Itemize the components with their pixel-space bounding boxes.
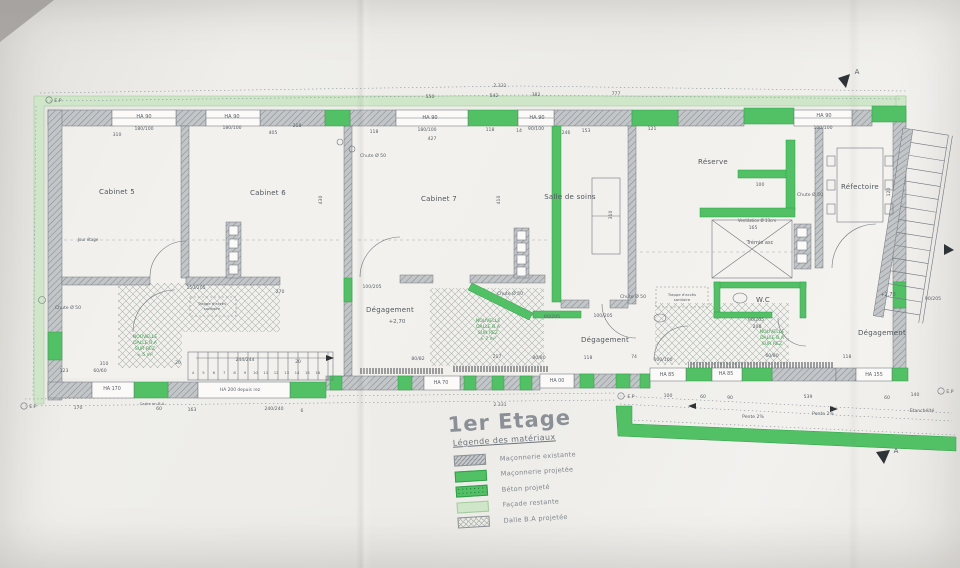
room-label: Réfectoire xyxy=(841,183,879,191)
dim-label: 14 xyxy=(516,128,522,134)
stair-number: 13 xyxy=(284,370,289,375)
dim-label: 208 xyxy=(753,324,762,330)
dim-label: SUR REZ xyxy=(762,341,782,347)
dim-label: 180/100 xyxy=(417,127,436,133)
dim-label: 246 xyxy=(562,130,571,136)
dim-label: 90/205 xyxy=(925,296,941,302)
legend-item: Dalle B.A projetée xyxy=(457,510,579,528)
dim-label: 542 xyxy=(490,93,499,99)
dim-label: 180/100 xyxy=(134,126,153,132)
dim-label: +2,70 xyxy=(880,292,895,298)
dim-label: Ventilation Ø 33cm xyxy=(738,218,776,223)
dim-label: 123 xyxy=(60,368,69,374)
room-label: Cabinet 6 xyxy=(250,189,286,197)
dim-label: ± 7 m² xyxy=(480,336,496,342)
dim-label: E.P xyxy=(627,394,634,400)
room-label: Dégagement xyxy=(858,329,906,337)
dim-label: 310 xyxy=(113,132,122,138)
dim-label: 170 xyxy=(74,405,83,411)
dim-label: 74 xyxy=(631,354,637,360)
dim-label: 60 xyxy=(700,394,706,400)
legend-label: Dalle B.A projetée xyxy=(503,512,567,524)
dim-label: 20 xyxy=(175,360,181,366)
dim-label: 120 xyxy=(886,188,892,197)
stair-number: 11 xyxy=(263,370,268,375)
dim-label: 60/205 xyxy=(544,314,560,320)
dim-label: HA 85 xyxy=(660,372,675,378)
dim-label: 100/205 xyxy=(362,284,381,290)
room-label: W.C xyxy=(756,296,770,304)
dim-label: 90/100 xyxy=(528,126,544,132)
dim-label: NOUVELLE xyxy=(476,318,501,324)
dim-label: 60 xyxy=(884,395,890,401)
dim-label: Chute Ø 50 xyxy=(797,191,823,198)
dim-label: 2.331 xyxy=(493,402,506,408)
stair-number: 14 xyxy=(295,370,300,375)
dim-label: E.P xyxy=(946,389,953,395)
dim-label: 550 xyxy=(426,94,435,100)
dim-label: 180/100 xyxy=(222,125,241,131)
dim-label: 80/82 xyxy=(411,356,424,362)
stair-direction-arrow xyxy=(944,244,954,255)
dim-label: Trémie asc xyxy=(746,239,774,246)
dim-label: DALLE B.A xyxy=(476,324,501,330)
dim-label: 118 xyxy=(370,129,379,135)
legend-label: Maçonnerie projetée xyxy=(501,465,574,477)
room-label: Salle de soins xyxy=(544,193,596,201)
room-label: Dégagement xyxy=(366,306,414,314)
dim-label: Etanchéité xyxy=(910,407,935,414)
dim-label: 165 xyxy=(749,225,758,231)
legend-label: Béton projeté xyxy=(502,482,550,493)
dim-label: 539 xyxy=(804,394,813,400)
dim-label: 118 xyxy=(486,127,495,133)
room-label: Réserve xyxy=(698,158,728,166)
dim-label: 20 xyxy=(295,359,301,365)
dim-label: 310 xyxy=(100,361,109,367)
dim-label: ± 5 m² xyxy=(137,352,153,358)
dim-label: Pente 2% xyxy=(742,414,764,420)
legend-label: Façade restante xyxy=(502,497,559,508)
dim-label: HA 00 xyxy=(550,378,565,384)
dim-label: 218 xyxy=(293,123,302,129)
room-label: Cabinet 7 xyxy=(421,195,457,203)
dim-label: 217 xyxy=(493,354,502,360)
dim-label: Jour étage xyxy=(77,237,99,242)
dim-label: Chute Ø 50 xyxy=(360,152,386,159)
dim-label: Chute Ø 50 xyxy=(620,293,646,300)
dim-label: 60 xyxy=(156,406,162,412)
dim-label: NOUVELLE xyxy=(133,334,158,340)
dim-label: 60/60 xyxy=(93,368,106,374)
dim-label: HA 90 xyxy=(529,115,544,121)
legend-list: Maçonnerie existanteMaçonnerie projetéeB… xyxy=(450,448,580,529)
stair-number: 15 xyxy=(305,370,310,375)
dim-label: 118 xyxy=(584,355,593,361)
dim-label: 6 xyxy=(301,408,304,414)
dim-label: A xyxy=(894,447,899,455)
dim-label: 382 xyxy=(532,92,541,98)
dim-label: 777 xyxy=(612,91,621,97)
dim-label: 240/240 xyxy=(264,406,283,412)
legend-swatch-projected xyxy=(455,469,488,482)
dim-label: NOUVELLE xyxy=(760,329,785,335)
legend-swatch-existing xyxy=(454,454,487,467)
dim-label: 244/244 xyxy=(235,357,254,363)
dim-label: 90 xyxy=(727,395,733,401)
dim-label: SUR REZ xyxy=(478,330,498,336)
dim-label: Pente 2% xyxy=(812,411,834,417)
dim-label: SUR REZ xyxy=(135,346,155,352)
dim-label: HA 170 xyxy=(103,386,121,392)
dim-label: DALLE B.A xyxy=(760,335,785,341)
legend-label: Maçonnerie existante xyxy=(500,450,576,463)
dim-label: Chute Ø 50 xyxy=(55,304,81,311)
dim-label: 60/80 xyxy=(765,353,778,359)
dim-label: 118 xyxy=(843,354,852,360)
dim-label: sanitaire xyxy=(674,297,691,302)
room-label: Dégagement xyxy=(581,336,629,344)
legend-swatch-facade xyxy=(456,500,489,513)
stair-number: 16 xyxy=(315,370,320,375)
dim-label: HA 90 xyxy=(422,115,437,121)
dim-label: Chute Ø 50 xyxy=(497,290,523,297)
dim-label: 100 xyxy=(756,182,765,188)
legend-swatch-dalle xyxy=(457,516,490,529)
legend-swatch-beton xyxy=(456,485,489,498)
dim-label: 100 xyxy=(664,393,673,399)
dim-label: DALLE B.A xyxy=(133,340,158,346)
dim-label: HA 90 xyxy=(224,114,239,120)
dim-label: 121 xyxy=(648,126,657,132)
dim-label: 163 xyxy=(188,407,197,413)
dim-label: HA 200 depuis rez xyxy=(220,387,261,393)
dim-label: 153 xyxy=(582,128,591,134)
dim-label: 430 xyxy=(318,196,324,205)
stair-number: 10 xyxy=(253,370,258,375)
room-label: Cabinet 5 xyxy=(99,188,135,196)
dim-label: HA 85 xyxy=(719,371,734,377)
dim-label: 100/205 xyxy=(593,313,612,319)
stair-number: 12 xyxy=(274,370,279,375)
dim-label: 270 xyxy=(276,289,285,295)
dim-label: HA 155 xyxy=(865,372,883,378)
dim-label: sanitaire xyxy=(204,306,221,311)
title-block: 1er Etage Légende des matériaux Maçonner… xyxy=(447,405,580,533)
dim-label: A xyxy=(855,68,860,76)
dim-label: 80/80 xyxy=(532,355,545,361)
dim-label: 427 xyxy=(428,136,437,142)
photo-corner-shadow xyxy=(0,0,54,42)
dim-label: HA 90 xyxy=(136,114,151,120)
dim-label: 100/100 xyxy=(813,125,832,131)
dim-label: +2,70 xyxy=(389,319,406,325)
dim-label: 140 xyxy=(911,392,920,398)
dim-label: 150/205 xyxy=(186,285,205,291)
dim-label: HA 90 xyxy=(816,113,831,119)
dim-label: 90/205 xyxy=(748,317,764,323)
dim-label: Cadre en B.A xyxy=(140,401,165,406)
dim-label: 410 xyxy=(496,196,502,205)
dim-label: HA 70 xyxy=(434,380,449,386)
dim-label: 100/100 xyxy=(653,357,672,363)
dim-label: 2.331 xyxy=(493,83,506,89)
dim-label: E.P xyxy=(54,98,61,104)
dim-label: 405 xyxy=(269,130,278,136)
dim-label: 310 xyxy=(608,211,614,220)
dim-label: E.P xyxy=(29,404,36,410)
